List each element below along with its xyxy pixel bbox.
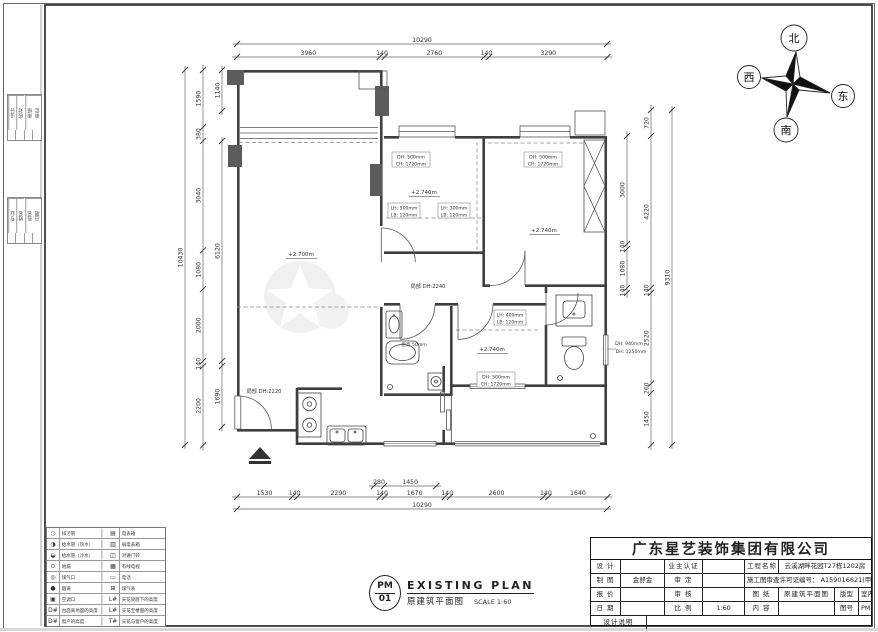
raised-floor-label: 抬高:50mm: [401, 341, 427, 348]
drawing-sheet: +2.700m +2.740m +2.740m +2.740m DH: 500m…: [0, 0, 878, 632]
legend-row: ◒ 给水管（冷水） ◫ 对讲门铃: [47, 550, 165, 561]
dim-label: 3290: [540, 50, 556, 57]
dim-label: 720: [644, 117, 651, 129]
signoff-cell: 签名: [25, 198, 33, 233]
dim-label: 1450: [644, 411, 651, 427]
dim-label: 1590: [196, 91, 203, 107]
plan-title-en: EXISTING PLAN: [407, 579, 534, 594]
drawing-title: 原建筑平面图: [779, 588, 835, 601]
dim-label: 2520: [644, 330, 651, 346]
window-top-symbol: T#: [107, 616, 120, 626]
hot-water-icon: ◑: [47, 539, 60, 549]
window-label: DH: 1250mm: [616, 349, 647, 355]
weak-current-box-icon: ▥: [107, 539, 120, 549]
dim-label: 3960: [300, 50, 316, 57]
entry-arrow: [249, 447, 271, 464]
gas-meter-icon: ⊞: [107, 583, 120, 593]
draftsman-name: 金舒金: [621, 574, 665, 587]
floor-drain: [591, 434, 596, 439]
dim-label: 10430: [178, 248, 185, 268]
dim-label: 1080: [620, 261, 627, 277]
drawing-number: PM-01: [859, 602, 871, 615]
plan-title-block: PM 01 EXISTING PLAN 原建筑平面图 SCALE 1:60: [369, 575, 534, 611]
legend-row: D# 台面离地面的高度 L# 天花至楼面的高度: [47, 605, 165, 616]
legend-row: ▣ 空调口 L# 天花梁底下的高度: [47, 594, 165, 605]
plan-title-cn: 原建筑平面图: [407, 595, 464, 607]
signoff-cell: 设计: [8, 95, 16, 130]
scale-value: 1:60: [703, 602, 745, 615]
dim-label: 6120: [215, 243, 222, 259]
legend-row: ○ 排污管 ▤ 电表箱: [47, 528, 165, 539]
signoff-cell: 校对: [16, 95, 24, 130]
level-label-bed4: +2.740m: [479, 347, 505, 353]
dim-label: 380: [196, 128, 203, 140]
plan-scale: SCALE 1:60: [474, 598, 512, 606]
window-label: CH: 1720mm: [528, 162, 559, 168]
dim-label: 9310: [665, 270, 672, 286]
legend-row: ◑ 给水管（热水） ▥ 弱电表箱: [47, 539, 165, 550]
dim-label: 1140: [215, 83, 222, 99]
project-name: 云溪湖畔花园T27栋1202房: [779, 560, 871, 573]
dim-label: 2000: [196, 317, 203, 333]
dim-label: 3040: [196, 188, 203, 204]
dim-label: 1690: [215, 389, 222, 405]
dim-label: 2200: [196, 398, 203, 414]
cold-water-icon: ◒: [47, 550, 60, 560]
legend-row: D# 窗户的高度 T# 天花与窗户的高度: [47, 616, 165, 626]
signoff-table-top: 设计 校对 审核 审定: [7, 94, 42, 141]
dim-label: 10290: [412, 37, 432, 44]
dim-label: 10290: [412, 502, 432, 509]
floor-drain: [388, 385, 393, 390]
dim-label: 1450: [402, 479, 418, 486]
ac-outlet-icon: ▣: [47, 594, 60, 604]
dim-label: 1080: [196, 262, 203, 278]
level-label-bed2: +2.740m: [411, 190, 437, 196]
meter-box-icon: ▤: [107, 528, 120, 538]
legend-row: ● 烟道 ⊞ 煤气表: [47, 583, 165, 594]
floor-plan: +2.700m +2.740m +2.740m +2.740m DH: 500m…: [178, 37, 676, 512]
dim-label: 1640: [570, 490, 586, 497]
signoff-cell: 日期: [33, 198, 41, 233]
telephone-icon: ▭: [107, 572, 120, 582]
compass-rose: 北 西 东 南: [738, 25, 855, 142]
beam-label: LB: 120mm: [441, 213, 468, 219]
title-block-row: 设 计 业主认证 工程名称 云溪湖畔花园T27栋1202房: [591, 560, 871, 574]
legend-row: ◎ 煤气口 ▭ 电话: [47, 572, 165, 583]
partial-height-label: 局部 DH:2220: [247, 387, 282, 395]
window-label: CH: 1720mm: [396, 162, 427, 168]
dimension-chains: 3960140276014032901029015301402290140167…: [178, 37, 676, 512]
company-name: 广东星艺装饰集团有限公司: [591, 538, 871, 560]
dim-label: 2760: [426, 50, 442, 57]
signoff-cell: 审核: [25, 95, 33, 130]
intercom-icon: ◫: [107, 550, 120, 560]
window-label: DH: 500mm: [529, 155, 557, 161]
beam-height-symbol: L#: [107, 594, 120, 604]
signoff-cell: 姓名: [16, 198, 24, 233]
drain-pipe-icon: ○: [47, 528, 60, 538]
beam-label: LB: 120mm: [391, 213, 418, 219]
drawing-number-bottom: 01: [379, 595, 392, 604]
title-block-row: 日 期 比 例 1:60 内 容 图号 PM-01: [591, 602, 871, 616]
dim-label: 260: [644, 382, 651, 394]
washer: [428, 373, 444, 390]
company-watermark: [264, 261, 349, 333]
floor-drain-icon: ⊙: [47, 561, 60, 571]
dim-label: 2290: [330, 490, 346, 497]
window-label: DH: 500mm: [482, 375, 510, 381]
beam-label: LH: 400mm: [497, 313, 524, 319]
signoff-cell: 审定: [33, 95, 41, 130]
title-block-row: 制 图 金舒金 审 定 施工图审查许可证编号： A159016621(甲级): [591, 574, 871, 588]
legend-table: ○ 排污管 ▤ 电表箱 ◑ 给水管（热水） ▥ 弱电表箱 ◒ 给水管（冷水） ◫…: [46, 527, 166, 627]
signoff-cell: 专业: [8, 198, 16, 233]
compass-south-label: 南: [781, 124, 792, 137]
window-label: CH: 1720mm: [481, 382, 512, 388]
window-label: DH: 500mm: [397, 155, 425, 161]
window-label: DH: 940mm: [615, 341, 643, 347]
drawing-number-top: PM: [377, 582, 393, 591]
flue-icon: ●: [47, 583, 60, 593]
permit-number: 施工图审查许可证编号： A159016621(甲级): [745, 574, 871, 587]
stove: [298, 393, 321, 437]
beam-label: LH: 300mm: [441, 206, 468, 212]
beam-label: LB: 120mm: [497, 320, 524, 326]
toilet-tank: [562, 337, 586, 346]
gas-port-icon: ◎: [47, 572, 60, 582]
partial-height-label: 局部 DH:2240: [411, 282, 446, 290]
dim-label: 4220: [644, 204, 651, 220]
signoff-table-bottom: 专业 姓名 签名 日期: [7, 197, 42, 244]
dim-label: 1530: [257, 490, 273, 497]
title-block-row: 设计说明: [591, 616, 871, 629]
compass-east-label: 东: [838, 90, 849, 103]
beam-label: LH: 500mm: [391, 206, 418, 212]
ceiling-height-symbol: L#: [107, 605, 120, 615]
compass-west-label: 西: [744, 71, 755, 84]
counter-height-symbol: D#: [47, 605, 60, 615]
title-block: 广东星艺装饰集团有限公司 设 计 业主认证 工程名称 云溪湖畔花园T27栋120…: [590, 537, 872, 626]
compass-north-label: 北: [789, 32, 800, 45]
level-label-bed3: +2.740m: [531, 228, 557, 234]
dim-label: 2600: [489, 490, 505, 497]
toilet: [565, 347, 584, 370]
level-label-living: +2.700m: [288, 252, 314, 258]
title-block-row: 报 价 审 核 图 纸 原建筑平面图 版型 室内施工图: [591, 588, 871, 602]
legend-row: ⊙ 地漏 ▦ 有线电视: [47, 561, 165, 572]
window-height-symbol: D#: [47, 616, 60, 626]
drawing-type: 室内施工图: [859, 588, 871, 601]
dim-label: 280: [373, 479, 385, 486]
dim-label: 3000: [620, 182, 627, 198]
floor-drain: [558, 376, 563, 381]
drawing-number-badge: PM 01: [369, 575, 401, 611]
company-name-text: 广东星艺装饰集团有限公司: [632, 538, 830, 559]
duct-shaft: [584, 140, 605, 232]
dim-label: 1670: [407, 490, 423, 497]
cable-tv-icon: ▦: [107, 561, 120, 571]
